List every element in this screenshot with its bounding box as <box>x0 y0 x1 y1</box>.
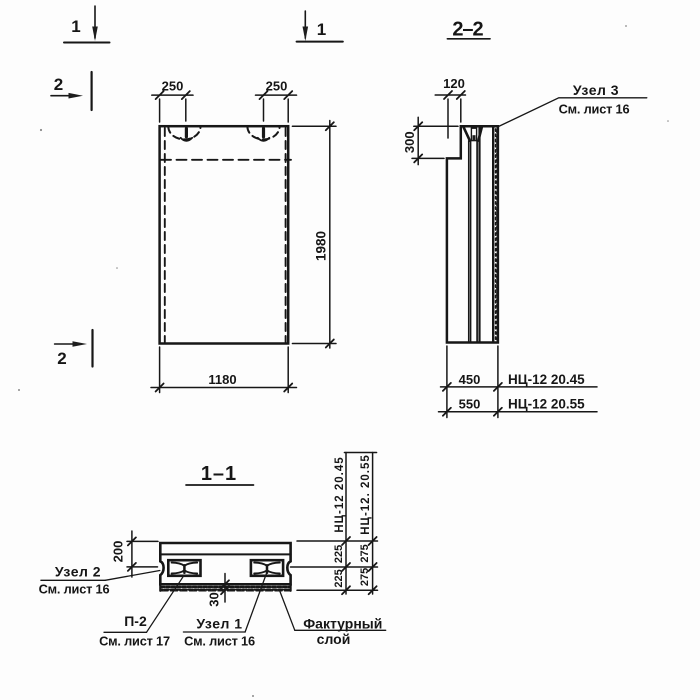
svg-text:2–2: 2–2 <box>452 19 483 41</box>
svg-text:2: 2 <box>54 75 63 94</box>
svg-text:275: 275 <box>359 544 371 562</box>
svg-text:1180: 1180 <box>208 372 236 387</box>
svg-text:Узел 1: Узел 1 <box>196 616 242 632</box>
svg-text:300: 300 <box>402 131 417 153</box>
svg-text:НЦ-12 20.45: НЦ-12 20.45 <box>334 456 346 532</box>
svg-text:1–1: 1–1 <box>201 463 237 485</box>
svg-text:П-2: П-2 <box>124 613 147 629</box>
svg-text:НЦ-12 20.45: НЦ-12 20.45 <box>508 372 585 387</box>
svg-text:30: 30 <box>207 592 222 606</box>
svg-text:НЦ-12 20.55: НЦ-12 20.55 <box>508 397 585 412</box>
svg-text:120: 120 <box>443 76 465 91</box>
svg-text:1980: 1980 <box>314 231 329 261</box>
svg-text:1: 1 <box>317 20 326 39</box>
svg-text:2: 2 <box>57 349 66 368</box>
svg-text:См. лист 16: См. лист 16 <box>559 102 630 117</box>
svg-text:250: 250 <box>266 79 288 94</box>
svg-text:225: 225 <box>333 545 345 563</box>
svg-text:См. лист 17: См. лист 17 <box>99 634 170 649</box>
svg-text:275: 275 <box>359 568 371 586</box>
svg-text:Узел 3: Узел 3 <box>573 82 619 98</box>
svg-text:200: 200 <box>111 541 126 563</box>
svg-text:550: 550 <box>459 397 481 412</box>
svg-text:Фактурный: Фактурный <box>303 616 382 632</box>
svg-text:Узел 2: Узел 2 <box>55 564 101 580</box>
svg-text:См. лист 16: См. лист 16 <box>39 581 110 596</box>
svg-text:См. лист 16: См. лист 16 <box>184 634 255 649</box>
svg-text:НЦ-12. 20.55: НЦ-12. 20.55 <box>360 454 372 535</box>
svg-text:225: 225 <box>333 569 345 587</box>
svg-text:слой: слой <box>317 631 351 647</box>
svg-text:250: 250 <box>162 79 184 94</box>
svg-text:450: 450 <box>459 372 481 387</box>
svg-text:1: 1 <box>71 17 80 36</box>
